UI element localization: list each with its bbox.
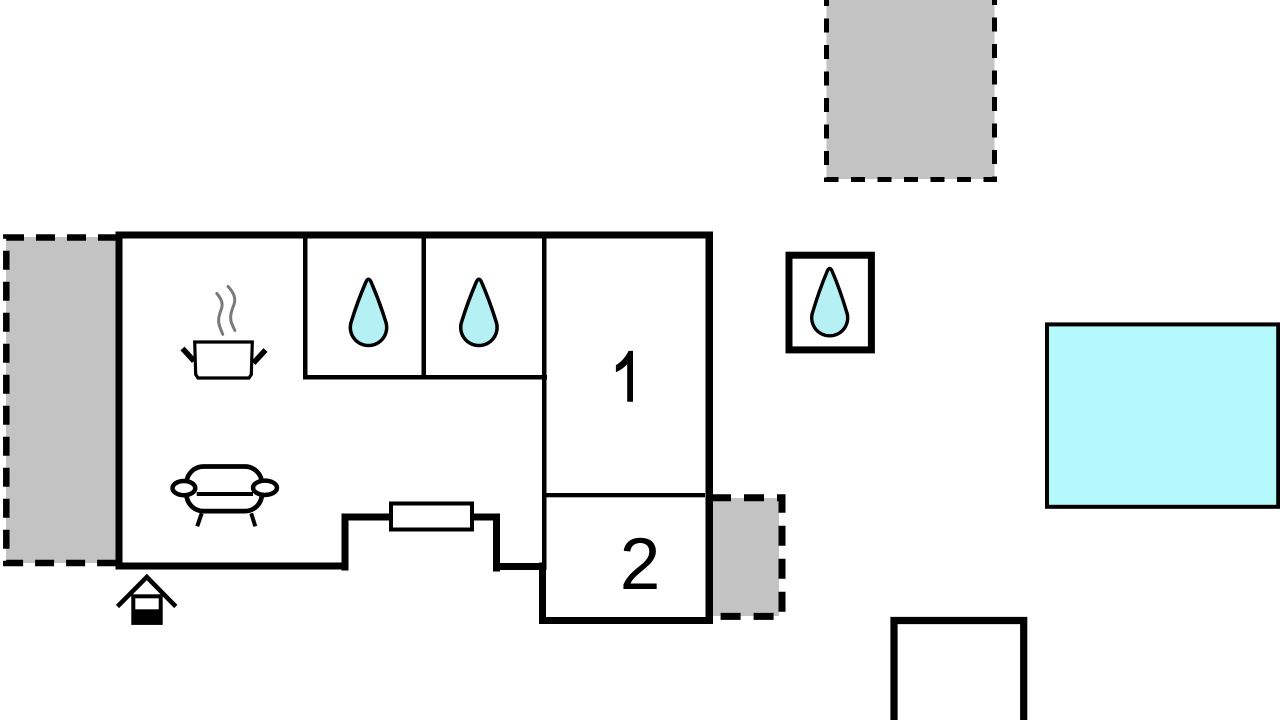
svg-text:2: 2 — [620, 524, 661, 605]
